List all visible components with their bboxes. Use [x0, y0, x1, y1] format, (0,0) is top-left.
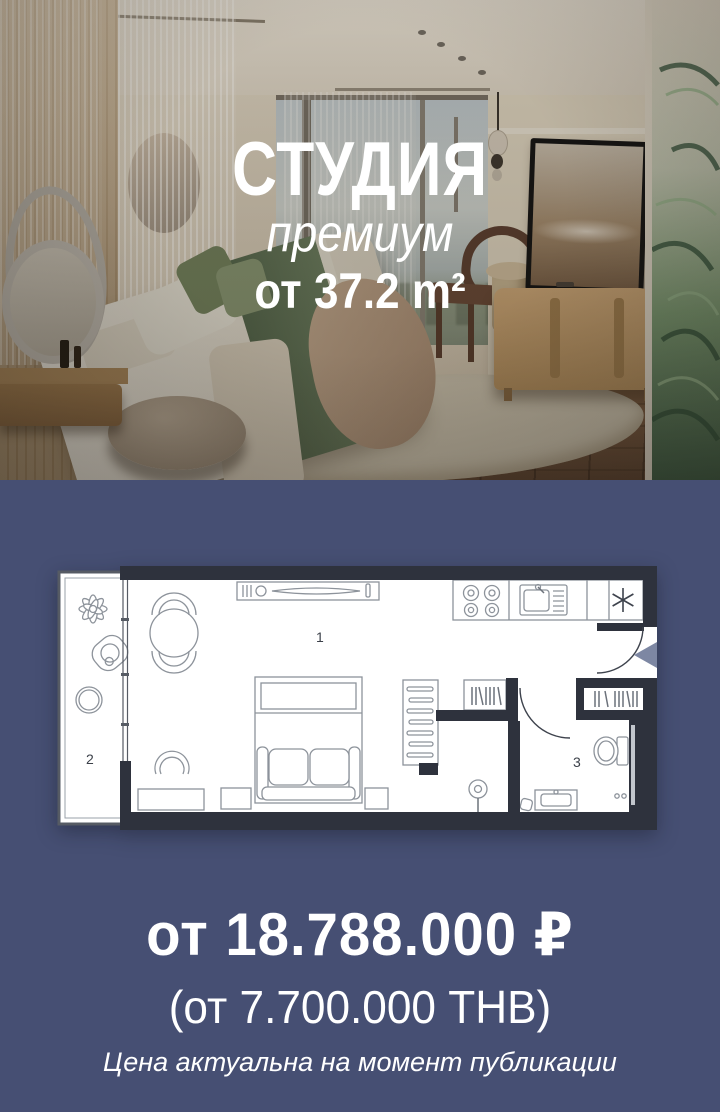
tv-console	[237, 582, 379, 600]
balcony-plant	[79, 595, 107, 623]
hero-title: СТУДИЯ	[65, 126, 655, 213]
balcony-side-table	[76, 687, 102, 713]
hero-photo: СТУДИЯ премиум от 37.2 m²	[0, 0, 720, 480]
shower-glass	[631, 725, 635, 805]
open-shelving	[403, 680, 438, 765]
price-rub: от 18.788.000 ₽	[22, 900, 699, 970]
side-table	[221, 788, 251, 809]
floor-plan: 1 2 3	[57, 563, 672, 833]
listing-card: СТУДИЯ премиум от 37.2 m²	[0, 0, 720, 1112]
hero-subtitle: премиум	[43, 204, 677, 264]
room-label-bathroom: 3	[573, 754, 581, 770]
price-note: Цена актуальна на момент публикации	[0, 1047, 720, 1078]
side-table	[365, 788, 388, 809]
room-label-balcony: 2	[86, 751, 94, 767]
price-thb: (от 7.700.000 THB)	[14, 980, 705, 1034]
hero-area: от 37.2 m²	[43, 262, 677, 320]
toilet-icon	[594, 737, 628, 765]
room-label-living: 1	[316, 629, 324, 645]
kitchen-counter	[453, 580, 643, 620]
hanger-closet	[464, 680, 506, 710]
murphy-bed-sofa	[255, 677, 362, 803]
